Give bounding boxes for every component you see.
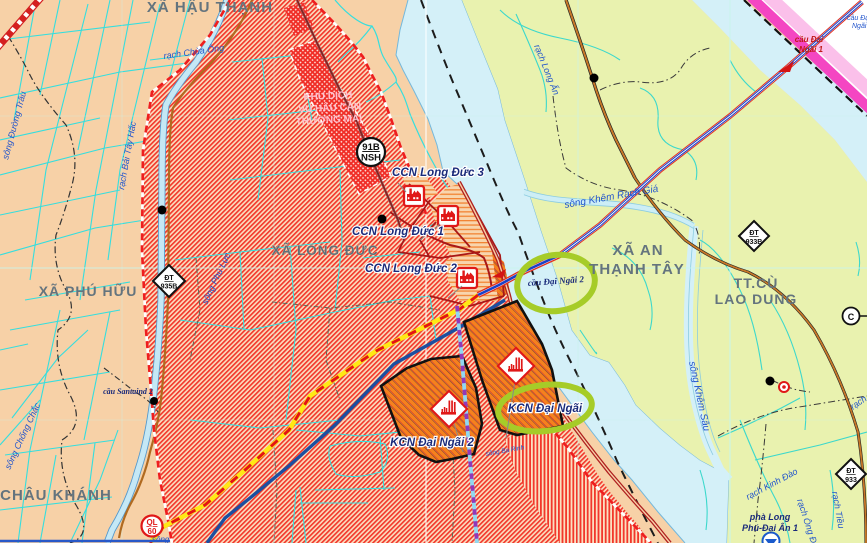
- svg-text:91B: 91B: [362, 142, 380, 153]
- svg-text:KCN Đại Ngãi: KCN Đại Ngãi: [508, 403, 583, 415]
- svg-text:XÃ HẬU THẠNH: XÃ HẬU THẠNH: [147, 0, 273, 16]
- svg-text:cầu Santaind 2: cầu Santaind 2: [103, 387, 153, 396]
- svg-text:CCN Long Đức 3: CCN Long Đức 3: [392, 167, 485, 179]
- svg-text:933: 933: [845, 477, 857, 484]
- svg-text:XÃ AN: XÃ AN: [612, 241, 663, 259]
- svg-text:Phú-Đại Ân 1: Phú-Đại Ân 1: [742, 522, 798, 533]
- svg-text:KCN Đại Ngãi 2: KCN Đại Ngãi 2: [390, 437, 474, 449]
- svg-text:LAO DUNG: LAO DUNG: [715, 291, 798, 307]
- svg-text:XÃ LONG ĐỨC: XÃ LONG ĐỨC: [272, 243, 379, 258]
- svg-text:THẠNH TÂY: THẠNH TÂY: [589, 260, 685, 278]
- svg-text:XÃ CHÂU KHÁNH: XÃ CHÂU KHÁNH: [0, 486, 112, 504]
- svg-text:phà Long: phà Long: [749, 512, 791, 522]
- svg-text:cầu Đại: cầu Đại: [847, 13, 867, 22]
- svg-text:QL: QL: [146, 518, 157, 527]
- svg-text:933B: 933B: [746, 239, 763, 246]
- svg-text:TT.CÙ: TT.CÙ: [734, 274, 779, 291]
- svg-text:ĐT: ĐT: [846, 468, 856, 475]
- svg-text:XÃ PHÚ HỮU: XÃ PHÚ HỮU: [39, 282, 138, 299]
- svg-text:Ngãi: Ngãi: [852, 23, 867, 30]
- svg-text:CCN Long Đức 2: CCN Long Đức 2: [365, 263, 458, 275]
- svg-text:935B: 935B: [161, 284, 178, 291]
- svg-text:C: C: [848, 312, 855, 322]
- svg-text:cầu Đại: cầu Đại: [795, 35, 824, 44]
- svg-text:ĐT: ĐT: [749, 230, 759, 237]
- svg-text:Ngãi 1: Ngãi 1: [799, 45, 824, 54]
- svg-text:ĐT: ĐT: [164, 275, 174, 282]
- svg-text:sông: sông: [152, 535, 170, 543]
- svg-text:CCN Long Đức 1: CCN Long Đức 1: [352, 226, 444, 238]
- svg-text:NSH: NSH: [361, 153, 381, 164]
